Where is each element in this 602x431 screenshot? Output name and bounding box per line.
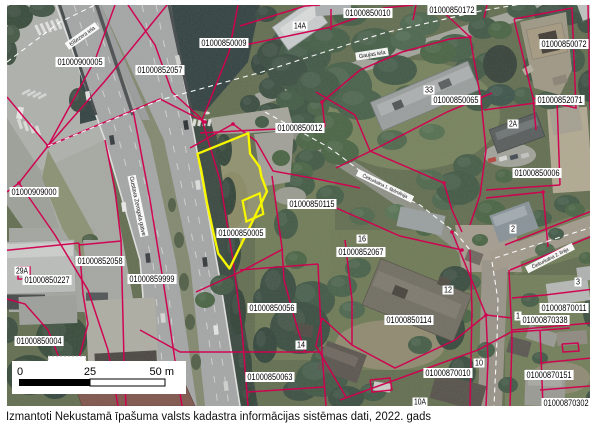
svg-text:10A: 10A	[414, 398, 427, 407]
svg-text:10: 10	[475, 359, 483, 368]
svg-text:01000850005: 01000850005	[218, 228, 263, 239]
svg-text:01000850004: 01000850004	[17, 336, 62, 347]
svg-text:16: 16	[358, 235, 366, 244]
svg-text:50 m: 50 m	[150, 366, 174, 378]
svg-text:29A: 29A	[16, 267, 29, 276]
svg-text:01000850227: 01000850227	[25, 275, 70, 286]
svg-text:33: 33	[425, 86, 433, 95]
svg-text:25: 25	[84, 366, 96, 378]
svg-text:14A: 14A	[294, 22, 307, 31]
svg-text:Izmantoti Nekustamā īpašuma va: Izmantoti Nekustamā īpašuma valsts kadas…	[6, 411, 431, 423]
svg-text:1: 1	[516, 312, 520, 321]
svg-text:01000900005: 01000900005	[58, 57, 103, 68]
svg-text:01000859999: 01000859999	[129, 274, 174, 285]
svg-text:3: 3	[576, 278, 580, 287]
svg-text:0: 0	[17, 366, 23, 378]
svg-text:12: 12	[444, 286, 452, 295]
svg-text:01000852071: 01000852071	[538, 95, 583, 106]
svg-text:01000852057: 01000852057	[137, 65, 182, 76]
svg-text:01000850009: 01000850009	[201, 38, 246, 49]
svg-text:01000852067: 01000852067	[338, 247, 383, 258]
svg-text:01000850114: 01000850114	[386, 315, 431, 326]
svg-text:01000850010: 01000850010	[345, 8, 390, 19]
svg-text:01000850072: 01000850072	[542, 39, 587, 50]
svg-text:01000870010: 01000870010	[425, 368, 470, 379]
svg-text:01000850056: 01000850056	[249, 303, 294, 314]
svg-text:2A: 2A	[509, 120, 518, 129]
svg-text:01000850006: 01000850006	[515, 168, 560, 179]
svg-text:01000850063: 01000850063	[247, 372, 292, 383]
svg-text:01000850115: 01000850115	[289, 199, 334, 210]
svg-text:01000850172: 01000850172	[429, 5, 474, 16]
svg-text:14: 14	[297, 341, 305, 350]
svg-text:01000870338: 01000870338	[523, 315, 568, 326]
svg-text:01000850065: 01000850065	[433, 95, 478, 106]
svg-text:01000909000: 01000909000	[12, 187, 57, 198]
svg-text:01000850012: 01000850012	[277, 123, 322, 134]
svg-text:01000852058: 01000852058	[78, 256, 123, 267]
svg-text:01000870011: 01000870011	[542, 303, 587, 314]
svg-text:2: 2	[511, 225, 515, 234]
svg-text:01000870151: 01000870151	[527, 370, 572, 381]
